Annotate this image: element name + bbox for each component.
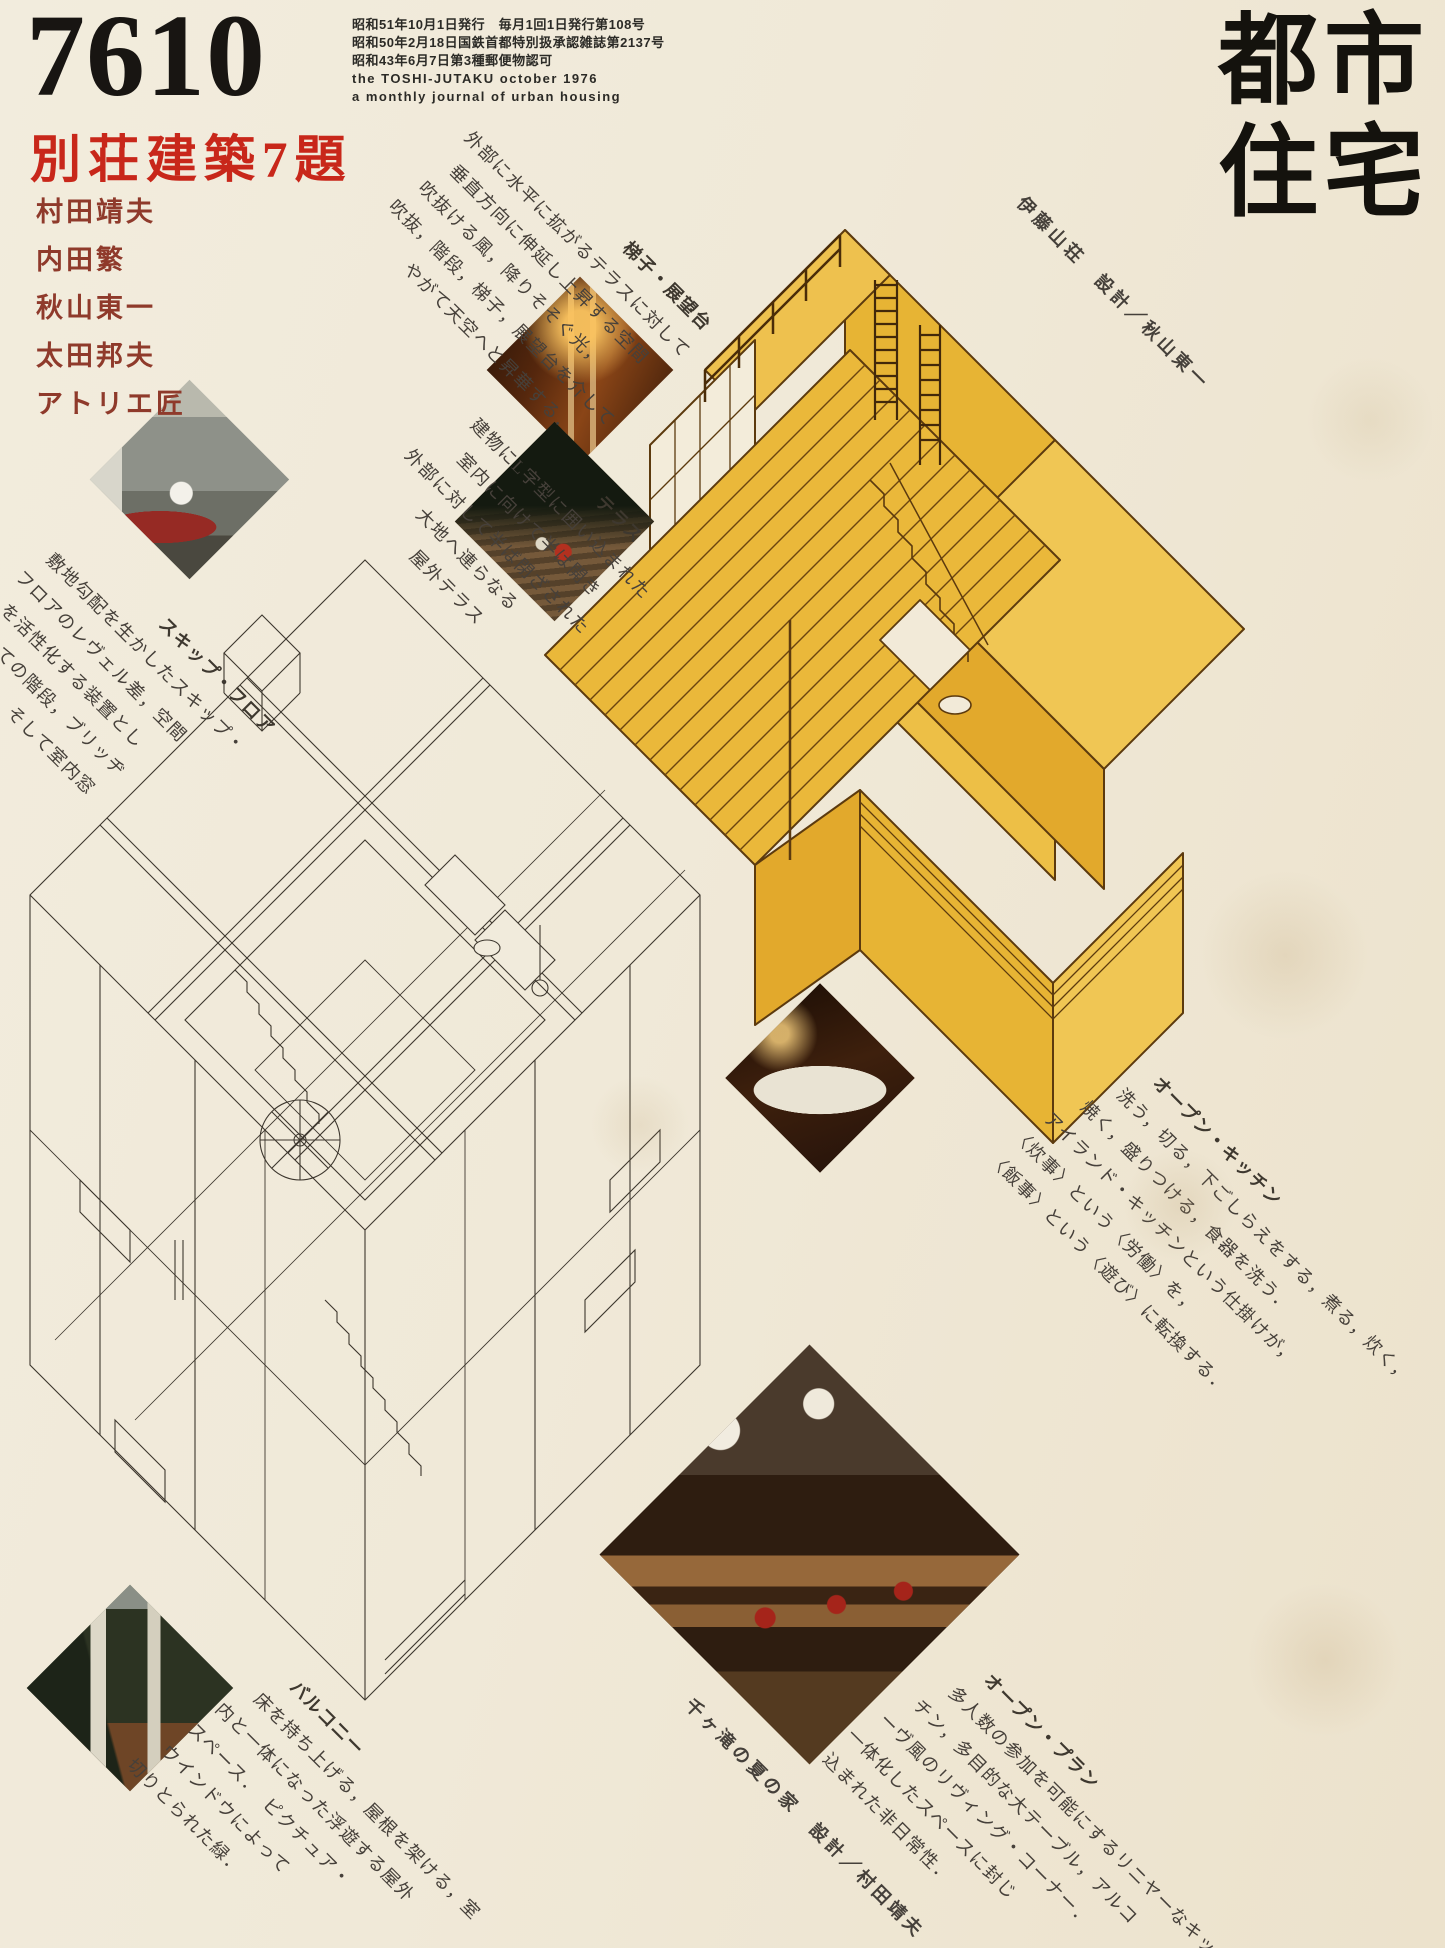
publication-line-english: the TOSHI-JUTAKU october 1976 — [352, 70, 665, 88]
contributor-name: 村田靖夫 — [36, 190, 186, 229]
publication-info: 昭和51年10月1日発行 毎月1回1日発行第108号 昭和50年2月18日国鉄首… — [352, 16, 665, 106]
contributor-name: 内田繁 — [36, 238, 186, 277]
magazine-cover: 7610 別荘建築7題 村田靖夫 内田繁 秋山東一 太田邦夫 アトリエ匠 昭和5… — [0, 0, 1445, 1948]
contributor-list: 村田靖夫 内田繁 秋山東一 太田邦夫 アトリエ匠 — [36, 190, 186, 430]
feature-title: 別荘建築7題 — [30, 118, 353, 192]
contributor-name: アトリエ匠 — [36, 382, 186, 421]
contributor-name: 太田邦夫 — [36, 334, 186, 373]
magazine-logo: 都市 住宅 — [1218, 6, 1430, 230]
contributor-name: 秋山東一 — [36, 286, 186, 325]
logo-line: 都市 — [1218, 6, 1430, 118]
publication-line: 昭和50年2月18日国鉄首都特別扱承認雑誌第2137号 — [352, 34, 665, 52]
logo-line: 住宅 — [1218, 118, 1430, 230]
publication-line: 昭和51年10月1日発行 毎月1回1日発行第108号 — [352, 16, 665, 34]
issue-number: 7610 — [26, 0, 266, 124]
publication-line: 昭和43年6月7日第3種郵便物認可 — [352, 52, 665, 70]
